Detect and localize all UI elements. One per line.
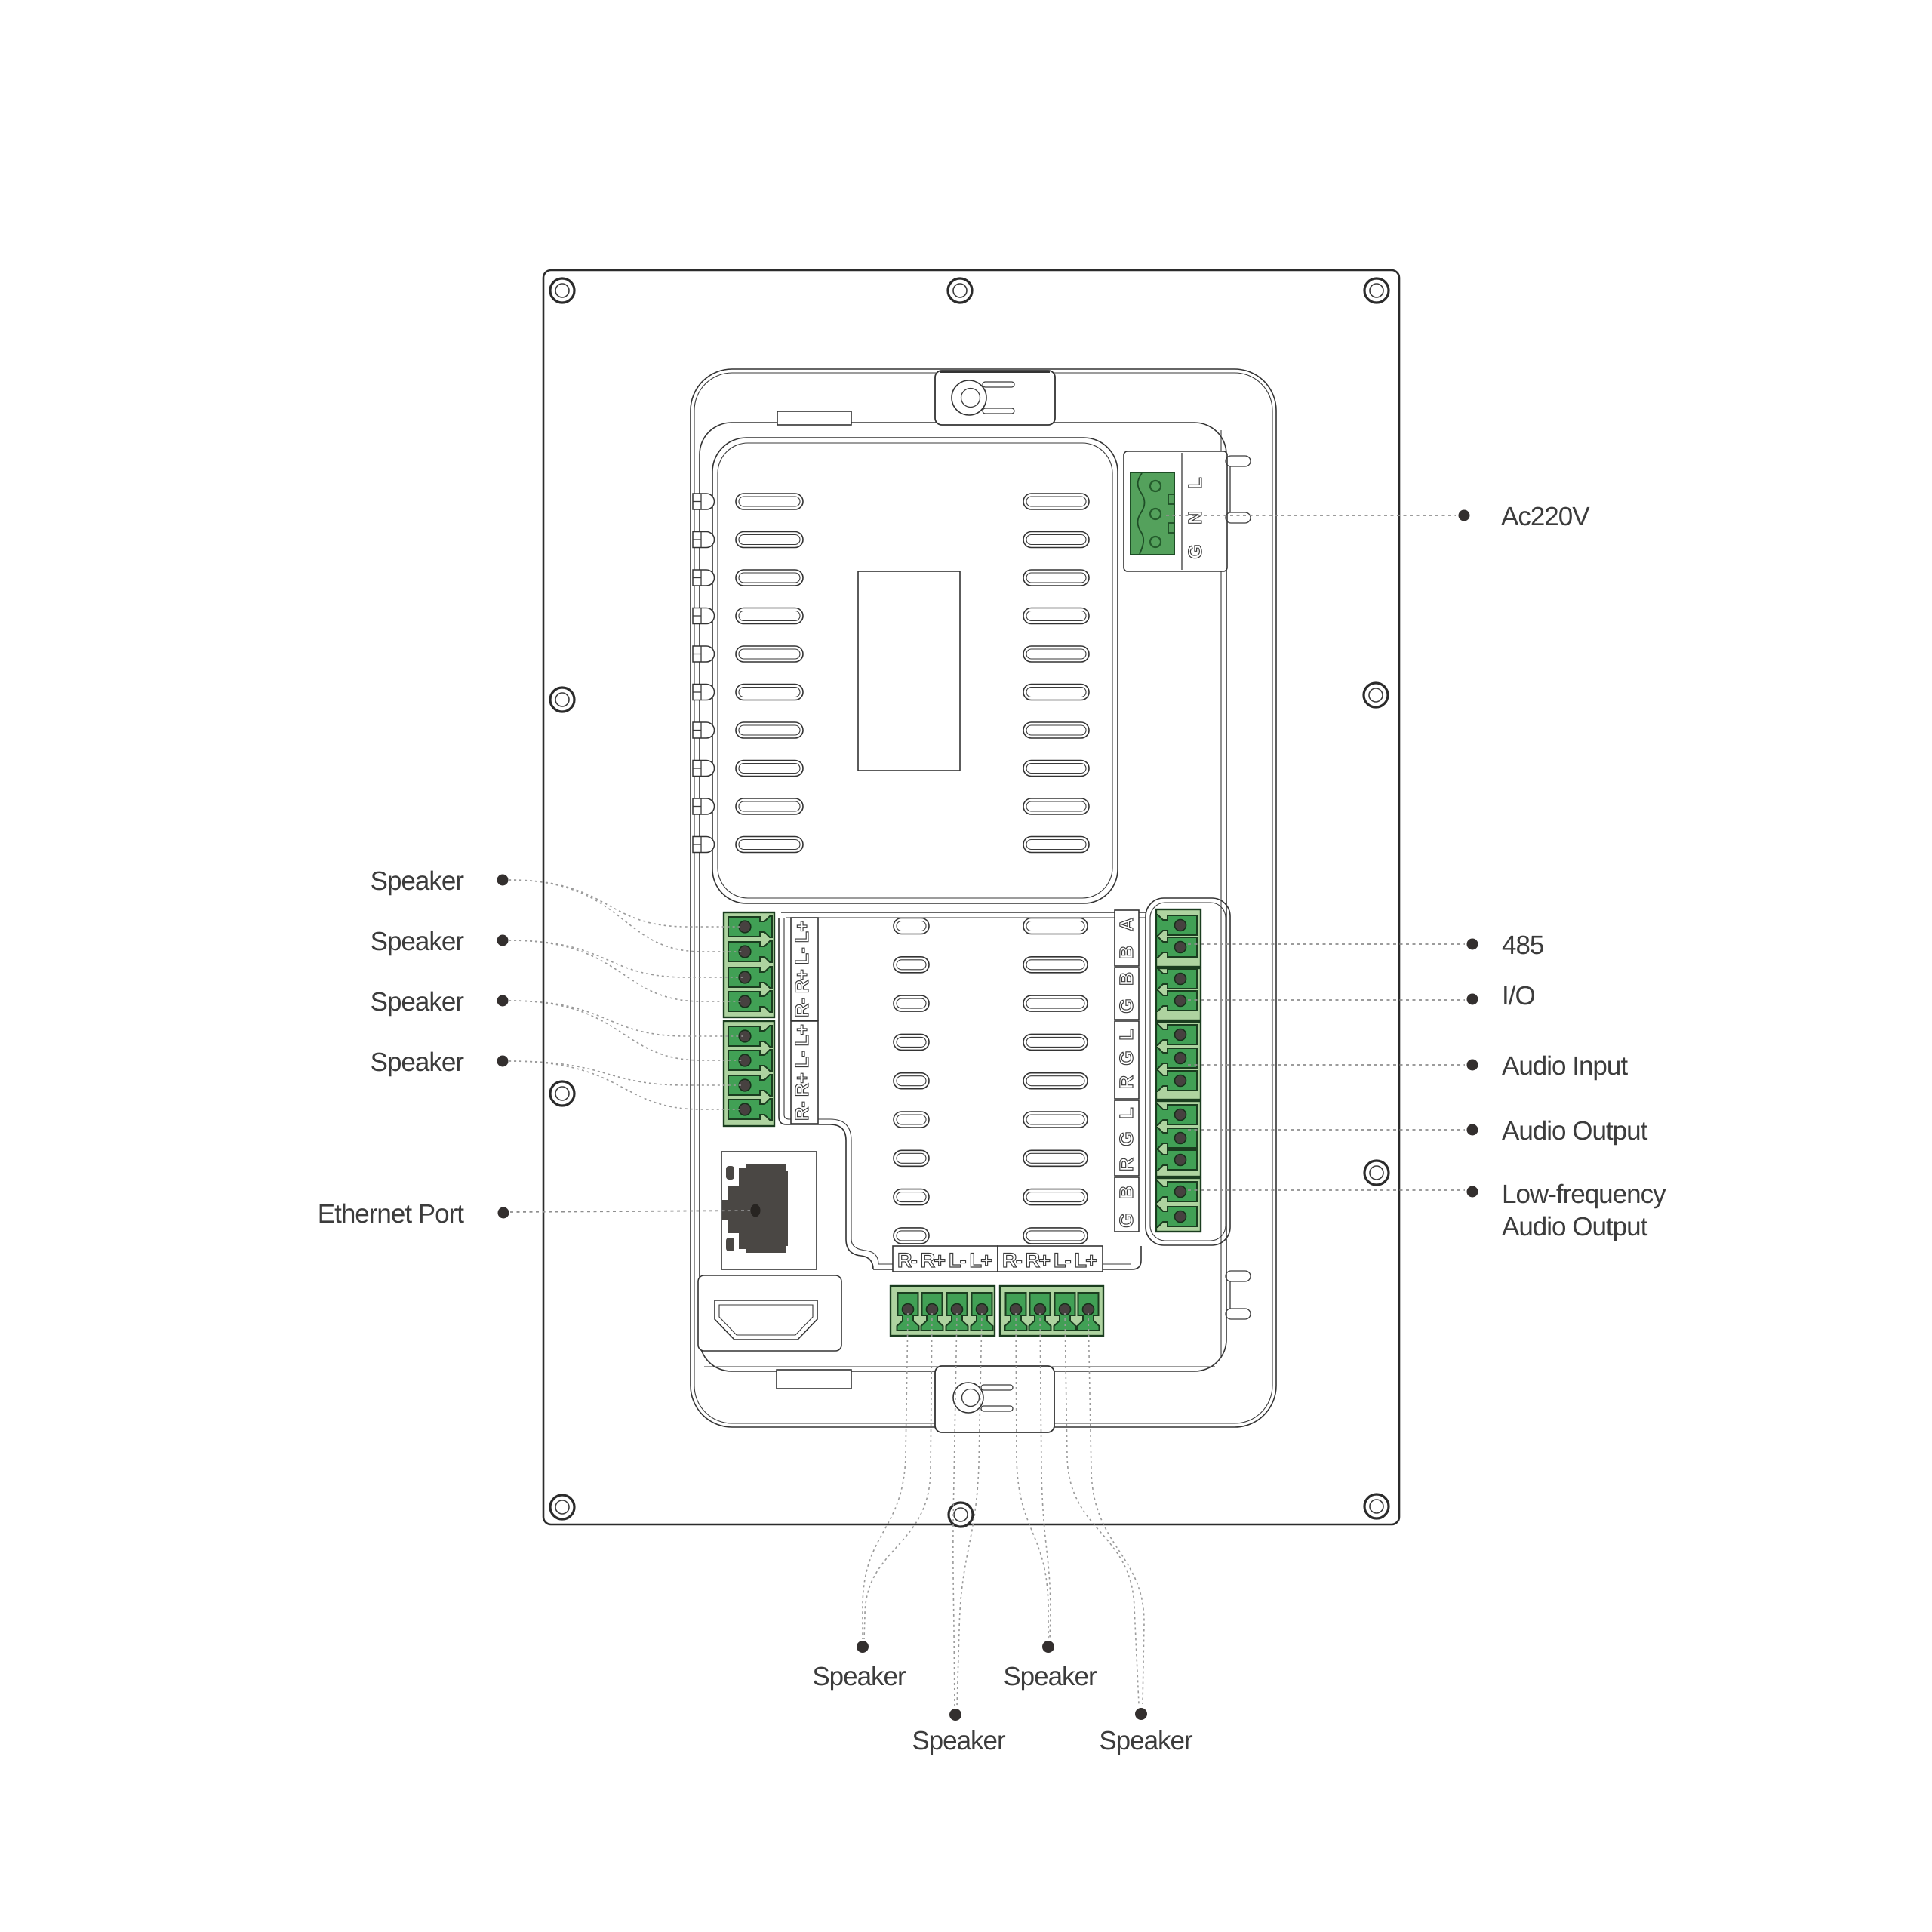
svg-text:G: G [1116, 1131, 1137, 1146]
svg-text:Speaker: Speaker [371, 1048, 465, 1077]
svg-text:R: R [1116, 1075, 1137, 1089]
svg-text:A: A [1116, 918, 1137, 931]
svg-text:Speaker: Speaker [912, 1726, 1006, 1755]
svg-text:G: G [1116, 1213, 1137, 1227]
svg-text:Speaker: Speaker [371, 987, 465, 1017]
svg-text:R- R+ L- L+: R- R+ L- L+ [897, 1249, 992, 1272]
svg-text:Speaker: Speaker [812, 1662, 906, 1691]
svg-text:R- R+ L- L+: R- R+ L- L+ [792, 1024, 813, 1121]
svg-text:Audio Input: Audio Input [1502, 1051, 1628, 1081]
svg-text:Audio Output: Audio Output [1502, 1116, 1648, 1146]
svg-text:L: L [1116, 1029, 1137, 1040]
svg-text:B: B [1116, 972, 1137, 986]
svg-text:L: L [1185, 477, 1206, 488]
svg-text:R- R+ L- L+: R- R+ L- L+ [792, 921, 813, 1017]
svg-text:B: B [1116, 1186, 1137, 1199]
svg-text:R: R [1116, 1158, 1137, 1171]
svg-text:Speaker: Speaker [1099, 1726, 1193, 1755]
svg-text:L: L [1116, 1107, 1137, 1118]
svg-text:Ac220V: Ac220V [1501, 502, 1590, 531]
svg-text:Speaker: Speaker [1003, 1662, 1097, 1691]
svg-text:R- R+ L- L+: R- R+ L- L+ [1002, 1249, 1097, 1272]
svg-text:N: N [1185, 511, 1206, 525]
svg-text:Speaker: Speaker [371, 927, 465, 956]
svg-text:G: G [1185, 544, 1206, 558]
svg-text:I/O: I/O [1502, 981, 1535, 1011]
svg-text:Low-frequency: Low-frequency [1502, 1180, 1666, 1209]
svg-text:B: B [1116, 946, 1137, 959]
svg-text:Ethernet Port: Ethernet Port [318, 1199, 464, 1229]
svg-text:G: G [1116, 998, 1137, 1013]
svg-text:Audio Output: Audio Output [1502, 1212, 1648, 1241]
svg-text:Speaker: Speaker [371, 866, 465, 896]
svg-text:G: G [1116, 1051, 1137, 1065]
svg-text:485: 485 [1502, 931, 1543, 960]
